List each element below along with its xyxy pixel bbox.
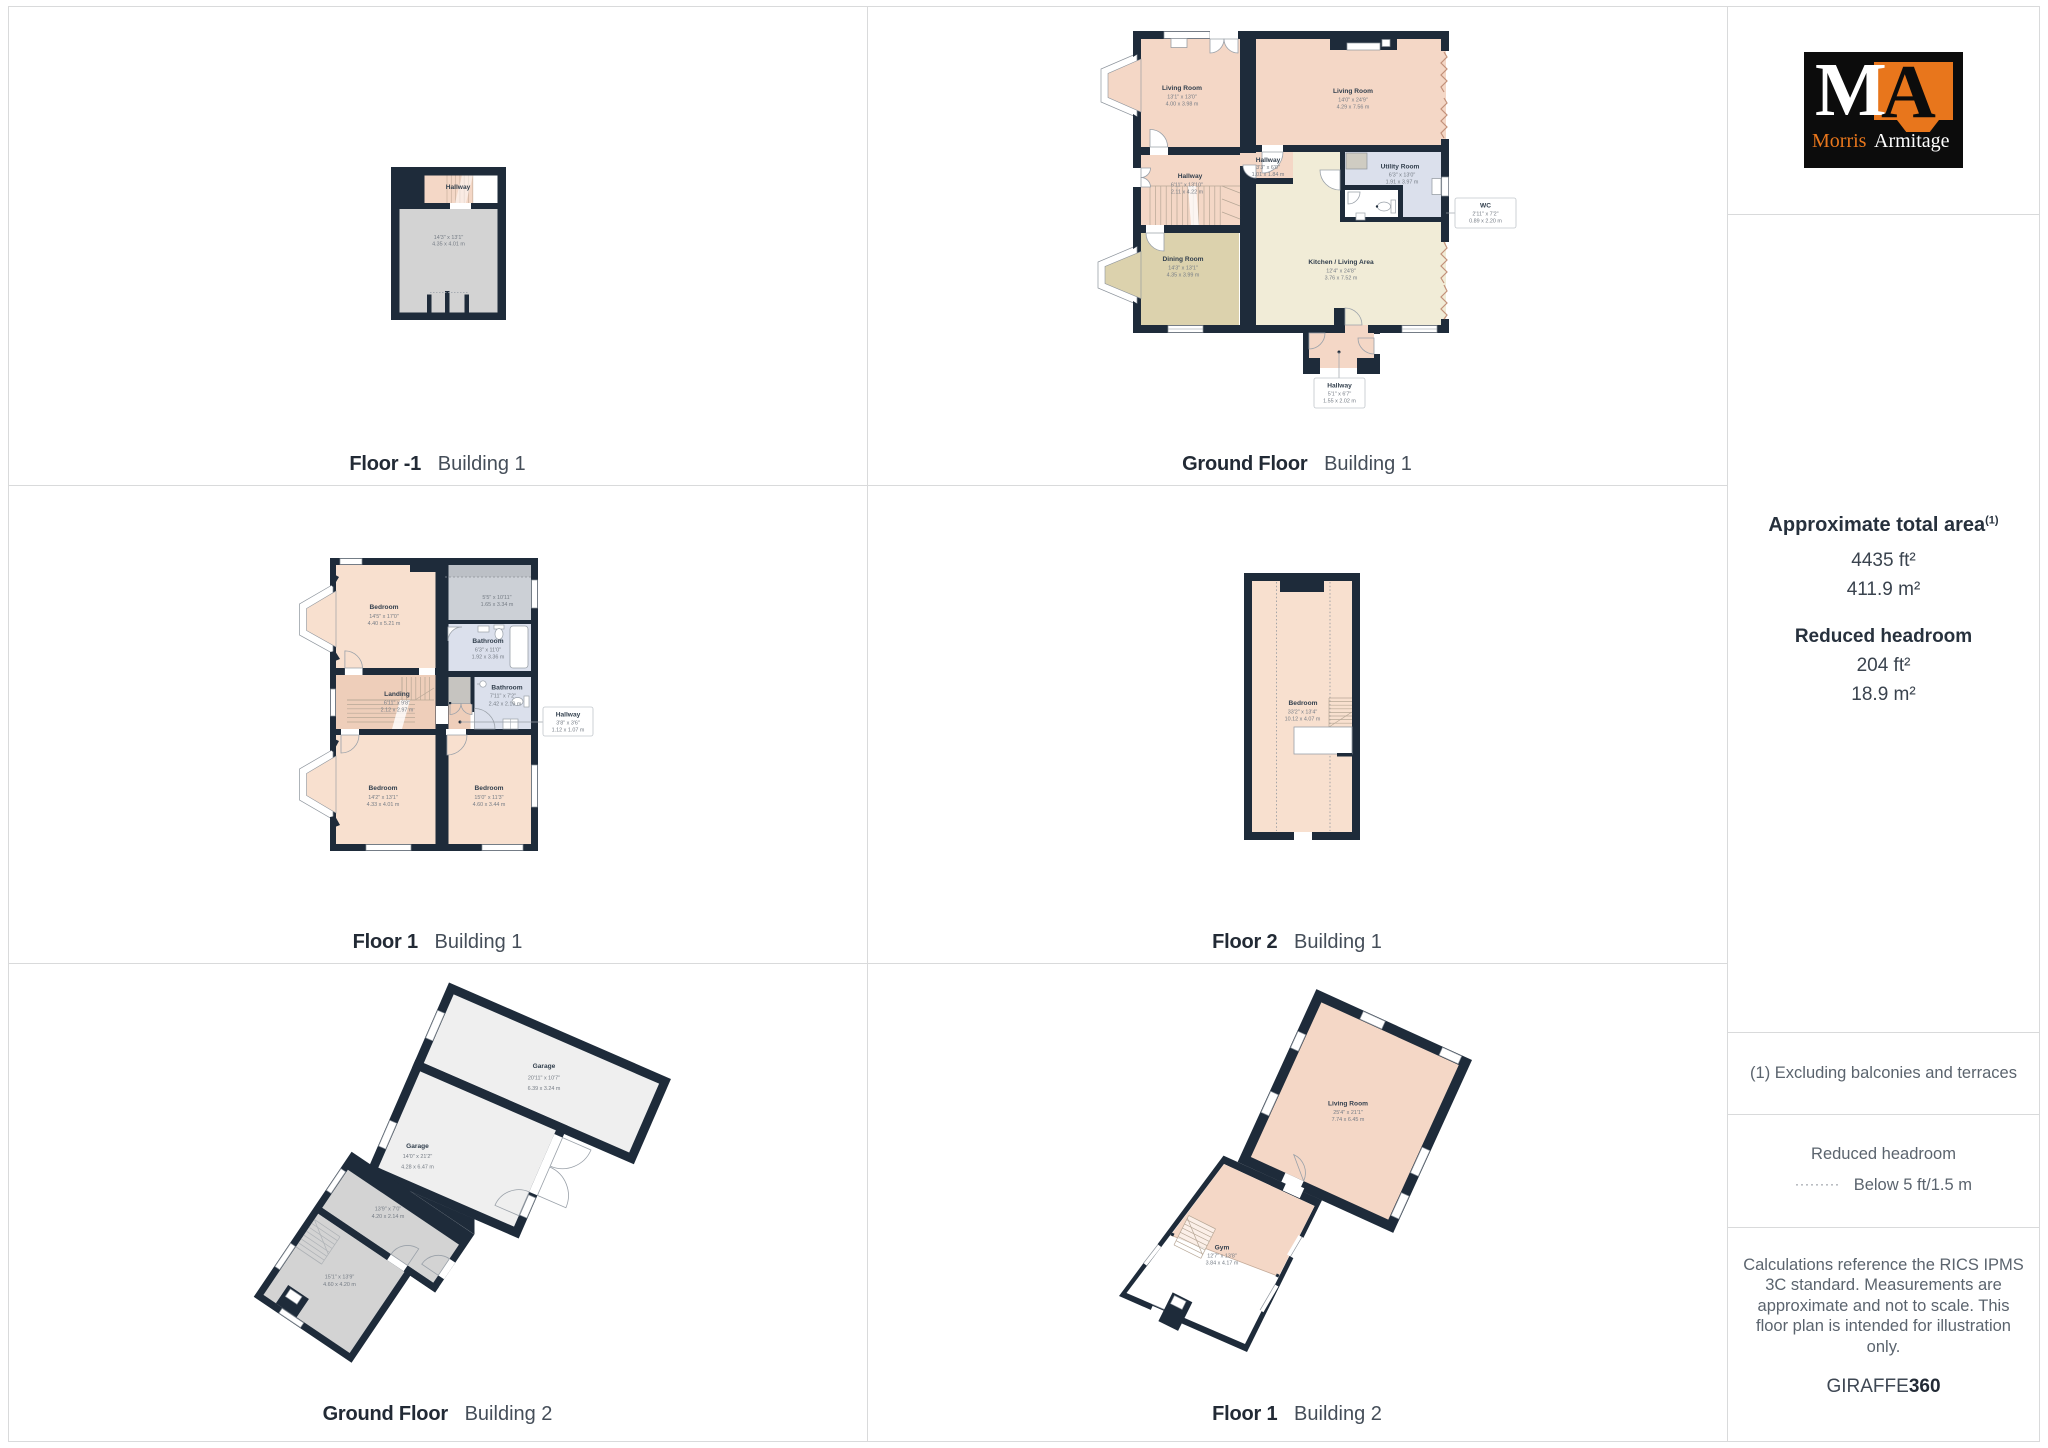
svg-text:7.74 x 6.45 m: 7.74 x 6.45 m [1332,1117,1365,1123]
svg-text:13'9" x 7'0": 13'9" x 7'0" [375,1207,402,1213]
svg-text:6'3" x 13'0": 6'3" x 13'0" [1389,173,1416,179]
svg-text:6'11" x 13'10": 6'11" x 13'10" [1171,183,1203,189]
svg-text:14'2" x 13'1": 14'2" x 13'1" [368,795,398,801]
svg-text:4.29 x 7.56 m: 4.29 x 7.56 m [1337,105,1370,111]
svg-text:Hallway: Hallway [1327,383,1352,390]
svg-text:10.12 x 4.07 m: 10.12 x 4.07 m [1285,717,1321,723]
svg-text:4.35 x 3.99 m: 4.35 x 3.99 m [1167,273,1200,279]
svg-text:Garage: Garage [406,1143,429,1150]
svg-text:Living Room: Living Room [1333,88,1373,95]
svg-text:20'11" x 10'7": 20'11" x 10'7" [528,1076,560,1082]
svg-text:3.76 x 7.52 m: 3.76 x 7.52 m [1325,276,1358,282]
svg-text:6.39 x 3.24 m: 6.39 x 3.24 m [528,1086,561,1092]
svg-text:14'3" x 13'1": 14'3" x 13'1" [1168,266,1198,272]
svg-text:5'5" x 10'11": 5'5" x 10'11" [482,595,511,601]
svg-text:Bedroom: Bedroom [370,604,399,611]
svg-text:Bedroom: Bedroom [369,785,398,792]
svg-text:3'8" x 3'6": 3'8" x 3'6" [556,721,580,727]
svg-text:4.28 x 6.47 m: 4.28 x 6.47 m [401,1165,434,1171]
svg-text:Bathroom: Bathroom [491,685,522,692]
svg-text:2.12 x 2.97 m: 2.12 x 2.97 m [381,708,414,714]
svg-text:12'4" x 24'8": 12'4" x 24'8" [1326,269,1356,275]
svg-text:4.20 x 2.14 m: 4.20 x 2.14 m [372,1214,405,1220]
svg-text:15'0" x 11'3": 15'0" x 11'3" [474,795,503,801]
svg-text:Hallway: Hallway [1256,157,1281,164]
svg-text:33'2" x 13'4": 33'2" x 13'4" [1288,710,1318,716]
svg-text:Dining Room: Dining Room [1162,256,1203,263]
svg-text:Living Room: Living Room [1328,1101,1368,1108]
svg-text:2'11" x 7'2": 2'11" x 7'2" [1472,212,1498,218]
svg-text:WC: WC [1480,203,1491,210]
svg-text:3.84 x 4.17 m: 3.84 x 4.17 m [1206,1261,1239,1267]
svg-text:Bedroom: Bedroom [475,785,504,792]
svg-text:5'1" x 6'7": 5'1" x 6'7" [1328,392,1352,398]
svg-text:2.11 x 4.22 m: 2.11 x 4.22 m [1171,190,1204,196]
svg-text:25'4" x 21'1": 25'4" x 21'1" [1333,1110,1363,1116]
svg-text:1.92 x 3.36 m: 1.92 x 3.36 m [472,655,505,661]
svg-text:1.12 x 1.07 m: 1.12 x 1.07 m [552,728,585,734]
svg-text:1.01 x 1.84 m: 1.01 x 1.84 m [1252,172,1285,178]
svg-text:4.35 x 4.01 m: 4.35 x 4.01 m [432,242,465,248]
svg-text:Utility Room: Utility Room [1381,164,1420,171]
svg-text:Gym: Gym [1215,1245,1230,1252]
svg-text:Bedroom: Bedroom [1289,700,1318,707]
svg-text:1.65 x 3.34 m: 1.65 x 3.34 m [481,602,514,608]
svg-text:14'3" x 13'1": 14'3" x 13'1" [434,235,464,241]
svg-text:6'11" x 9'8": 6'11" x 9'8" [384,701,410,707]
svg-text:6'3" x 11'0": 6'3" x 11'0" [475,648,501,654]
svg-text:4.33 x 4.01 m: 4.33 x 4.01 m [367,802,400,808]
svg-text:Bathroom: Bathroom [472,638,503,645]
svg-text:Kitchen / Living Area: Kitchen / Living Area [1308,259,1374,266]
svg-text:4.00 x 3.98 m: 4.00 x 3.98 m [1166,102,1199,108]
svg-text:1.91 x 3.97 m: 1.91 x 3.97 m [1386,180,1419,186]
svg-text:Living Room: Living Room [1162,85,1202,92]
svg-text:2.42 x 2.19 m: 2.42 x 2.19 m [489,702,522,708]
svg-text:15'1" x 13'9": 15'1" x 13'9" [325,1275,355,1281]
svg-text:4.40 x 5.21 m: 4.40 x 5.21 m [368,621,401,627]
svg-text:14'5" x 17'0": 14'5" x 17'0" [369,614,399,620]
svg-text:Hallway: Hallway [556,712,581,719]
svg-text:Hallway: Hallway [446,184,471,191]
svg-text:14'0" x 21'2": 14'0" x 21'2" [403,1154,433,1160]
svg-text:4.60 x 3.44 m: 4.60 x 3.44 m [473,802,506,808]
svg-text:12'7" x 13'8": 12'7" x 13'8" [1207,1254,1237,1260]
svg-text:Garage: Garage [533,1063,556,1070]
svg-text:Landing: Landing [384,691,410,698]
svg-text:13'1" x 13'0": 13'1" x 13'0" [1167,95,1197,101]
svg-text:7'11" x 7'2": 7'11" x 7'2" [490,694,516,700]
svg-text:3'3" x 6'0": 3'3" x 6'0" [1256,165,1280,171]
svg-text:0.89 x 2.20 m: 0.89 x 2.20 m [1469,219,1502,225]
svg-text:1.55 x 2.02 m: 1.55 x 2.02 m [1323,399,1356,405]
svg-text:4.60 x 4.20 m: 4.60 x 4.20 m [323,1282,356,1288]
svg-text:Hallway: Hallway [1178,173,1203,180]
svg-text:14'0" x 24'9": 14'0" x 24'9" [1338,98,1368,104]
